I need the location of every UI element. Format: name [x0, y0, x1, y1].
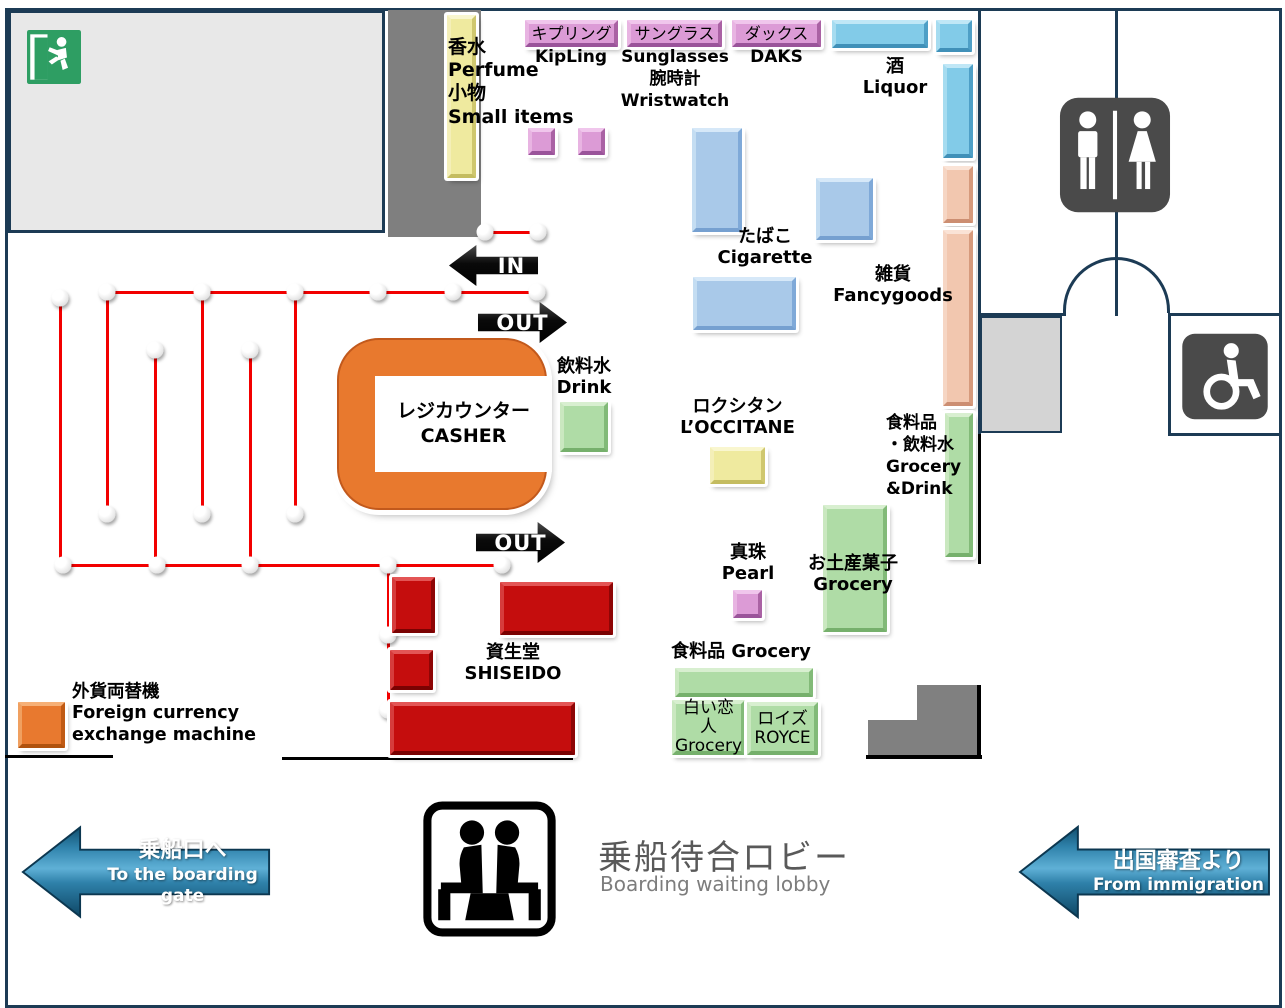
grocery-drink-label: 食料品 ・飲料水 Grocery &Drink [886, 412, 961, 500]
shelf-cigarette-1 [692, 128, 742, 232]
stairs-upper [917, 685, 980, 722]
shiseido-label: 資生堂 SHISEIDO [445, 642, 581, 684]
in-arrow: IN [447, 243, 540, 288]
out-arrow-upper: OUT [475, 300, 570, 345]
queue-post [55, 557, 72, 574]
out-arrow-lower: OUT [473, 520, 568, 565]
wall-restroom-bottom-right [1168, 313, 1279, 316]
shelf-liquor-corner [936, 20, 972, 52]
pearl-label: 真珠 Pearl [710, 542, 786, 584]
shelf-daks: ダックス [732, 20, 821, 47]
casher-label: レジカウンター CASHER [375, 376, 552, 472]
queue-post [147, 342, 164, 359]
out-arrow-lower-label: OUT [473, 520, 588, 565]
shelf-shiroi-koibito: 白い恋人Grocery [672, 700, 745, 755]
queue-post [99, 284, 116, 301]
wall-restroom-divider-top [1115, 10, 1118, 100]
queue-post [287, 284, 304, 301]
cigarette-label: たばこ Cigarette [705, 226, 825, 268]
counter-line-exchange [5, 755, 113, 758]
queue-post [194, 284, 211, 301]
floor-map: キプリング サングラス ダックス 白い恋人Grocery ロイズROYCE レジ… [0, 0, 1285, 1008]
fancygoods-label: 雑貨 Fancygoods [820, 264, 966, 306]
queue-line [249, 349, 252, 566]
casher-en-label: CASHER [421, 424, 507, 449]
queue-post [370, 284, 387, 301]
daks-jp-label: ダックス [745, 25, 809, 43]
shelf-drink [560, 402, 608, 452]
restroom-icon [1058, 96, 1172, 214]
shelf-shiseido-3 [390, 650, 433, 690]
queue-line [201, 292, 204, 515]
shelf-small-1 [528, 128, 555, 155]
shelf-shiseido-1 [392, 577, 435, 633]
kipling-en-label: KipLing [518, 47, 624, 67]
immigration-arrow-label: 出国審査より From immigration [1086, 849, 1271, 895]
sunglasses-jp-label: サングラス [635, 25, 715, 43]
boarding-gate-arrow: 乗船口へ To the boarding gate [20, 823, 272, 921]
shiroi-koibito-jp-label: 白い恋人 [683, 698, 734, 737]
shelf-shiseido-4 [390, 702, 575, 755]
queue-line [154, 349, 157, 566]
shelf-pearl [733, 590, 762, 618]
drink-label: 飲料水 Drink [545, 356, 623, 398]
shelf-grocery-bar [675, 668, 813, 697]
counter-line-shiseido [282, 757, 573, 760]
queue-post [380, 557, 397, 574]
queue-line [107, 291, 538, 294]
boarding-gate-arrow-label: 乗船口へ To the boarding gate [90, 849, 275, 895]
shelf-liquor-top [832, 20, 928, 48]
in-arrow-label: IN [447, 243, 558, 288]
stairs-edge-bottom [866, 755, 982, 759]
exchange-machine-block [18, 702, 65, 748]
souvenir-label: お土産菓子 Grocery [790, 553, 916, 595]
queue-post [287, 506, 304, 523]
shelf-liquor-side [943, 64, 973, 158]
queue-post [52, 290, 69, 307]
stairs-lower [868, 720, 980, 757]
daks-en-label: DAKS [732, 47, 821, 67]
shelf-shiseido-2 [500, 582, 613, 635]
wall-shop-right [978, 434, 981, 564]
loccitane-label: ロクシタン L’OCCITANE [660, 396, 815, 438]
lobby-title-en: Boarding waiting lobby [600, 872, 830, 896]
immigration-arrow: 出国審査より From immigration [1016, 823, 1273, 921]
queue-line [62, 564, 504, 567]
wall-accessible-bottom [1168, 433, 1279, 436]
shelf-loccitane [710, 447, 765, 484]
queue-post [242, 557, 259, 574]
queue-post [194, 506, 211, 523]
wall-restroom-divider-arc [1115, 258, 1118, 315]
out-arrow-upper-label: OUT [475, 300, 590, 345]
queue-post [477, 224, 494, 241]
shelf-royce: ロイズROYCE [747, 702, 818, 755]
sunglasses-label: Sunglasses 腕時計 Wristwatch [620, 47, 730, 112]
wheelchair-icon [1180, 332, 1270, 421]
liquor-label: 酒 Liquor [845, 56, 945, 98]
queue-post [530, 224, 547, 241]
casher-jp-label: レジカウンター [397, 399, 530, 424]
royce-jp-label: ロイズ [757, 709, 808, 729]
queue-line [59, 297, 62, 566]
waiting-lobby-icon [422, 800, 557, 938]
queue-post [149, 557, 166, 574]
queue-line [106, 292, 109, 515]
queue-post [99, 506, 116, 523]
wall-accessible-left [1168, 313, 1171, 436]
shelf-small-2 [578, 128, 605, 155]
exchange-label: 外貨両替機 Foreign currency exchange machine [72, 682, 256, 746]
shiroi-koibito-en-label: Grocery [675, 736, 742, 756]
shelf-sunglasses: サングラス [627, 20, 722, 47]
emergency-exit-icon [27, 30, 81, 84]
royce-en-label: ROYCE [754, 728, 810, 748]
grocery-label: 食料品 Grocery [660, 641, 822, 662]
shelf-cigarette-3 [693, 277, 796, 330]
elevator-block [980, 316, 1062, 433]
queue-line [294, 292, 297, 515]
queue-post [242, 342, 259, 359]
shelf-fancygoods-1 [943, 166, 973, 223]
stairs-edge-right [977, 685, 981, 759]
shelf-fancygoods-2 [943, 230, 973, 406]
